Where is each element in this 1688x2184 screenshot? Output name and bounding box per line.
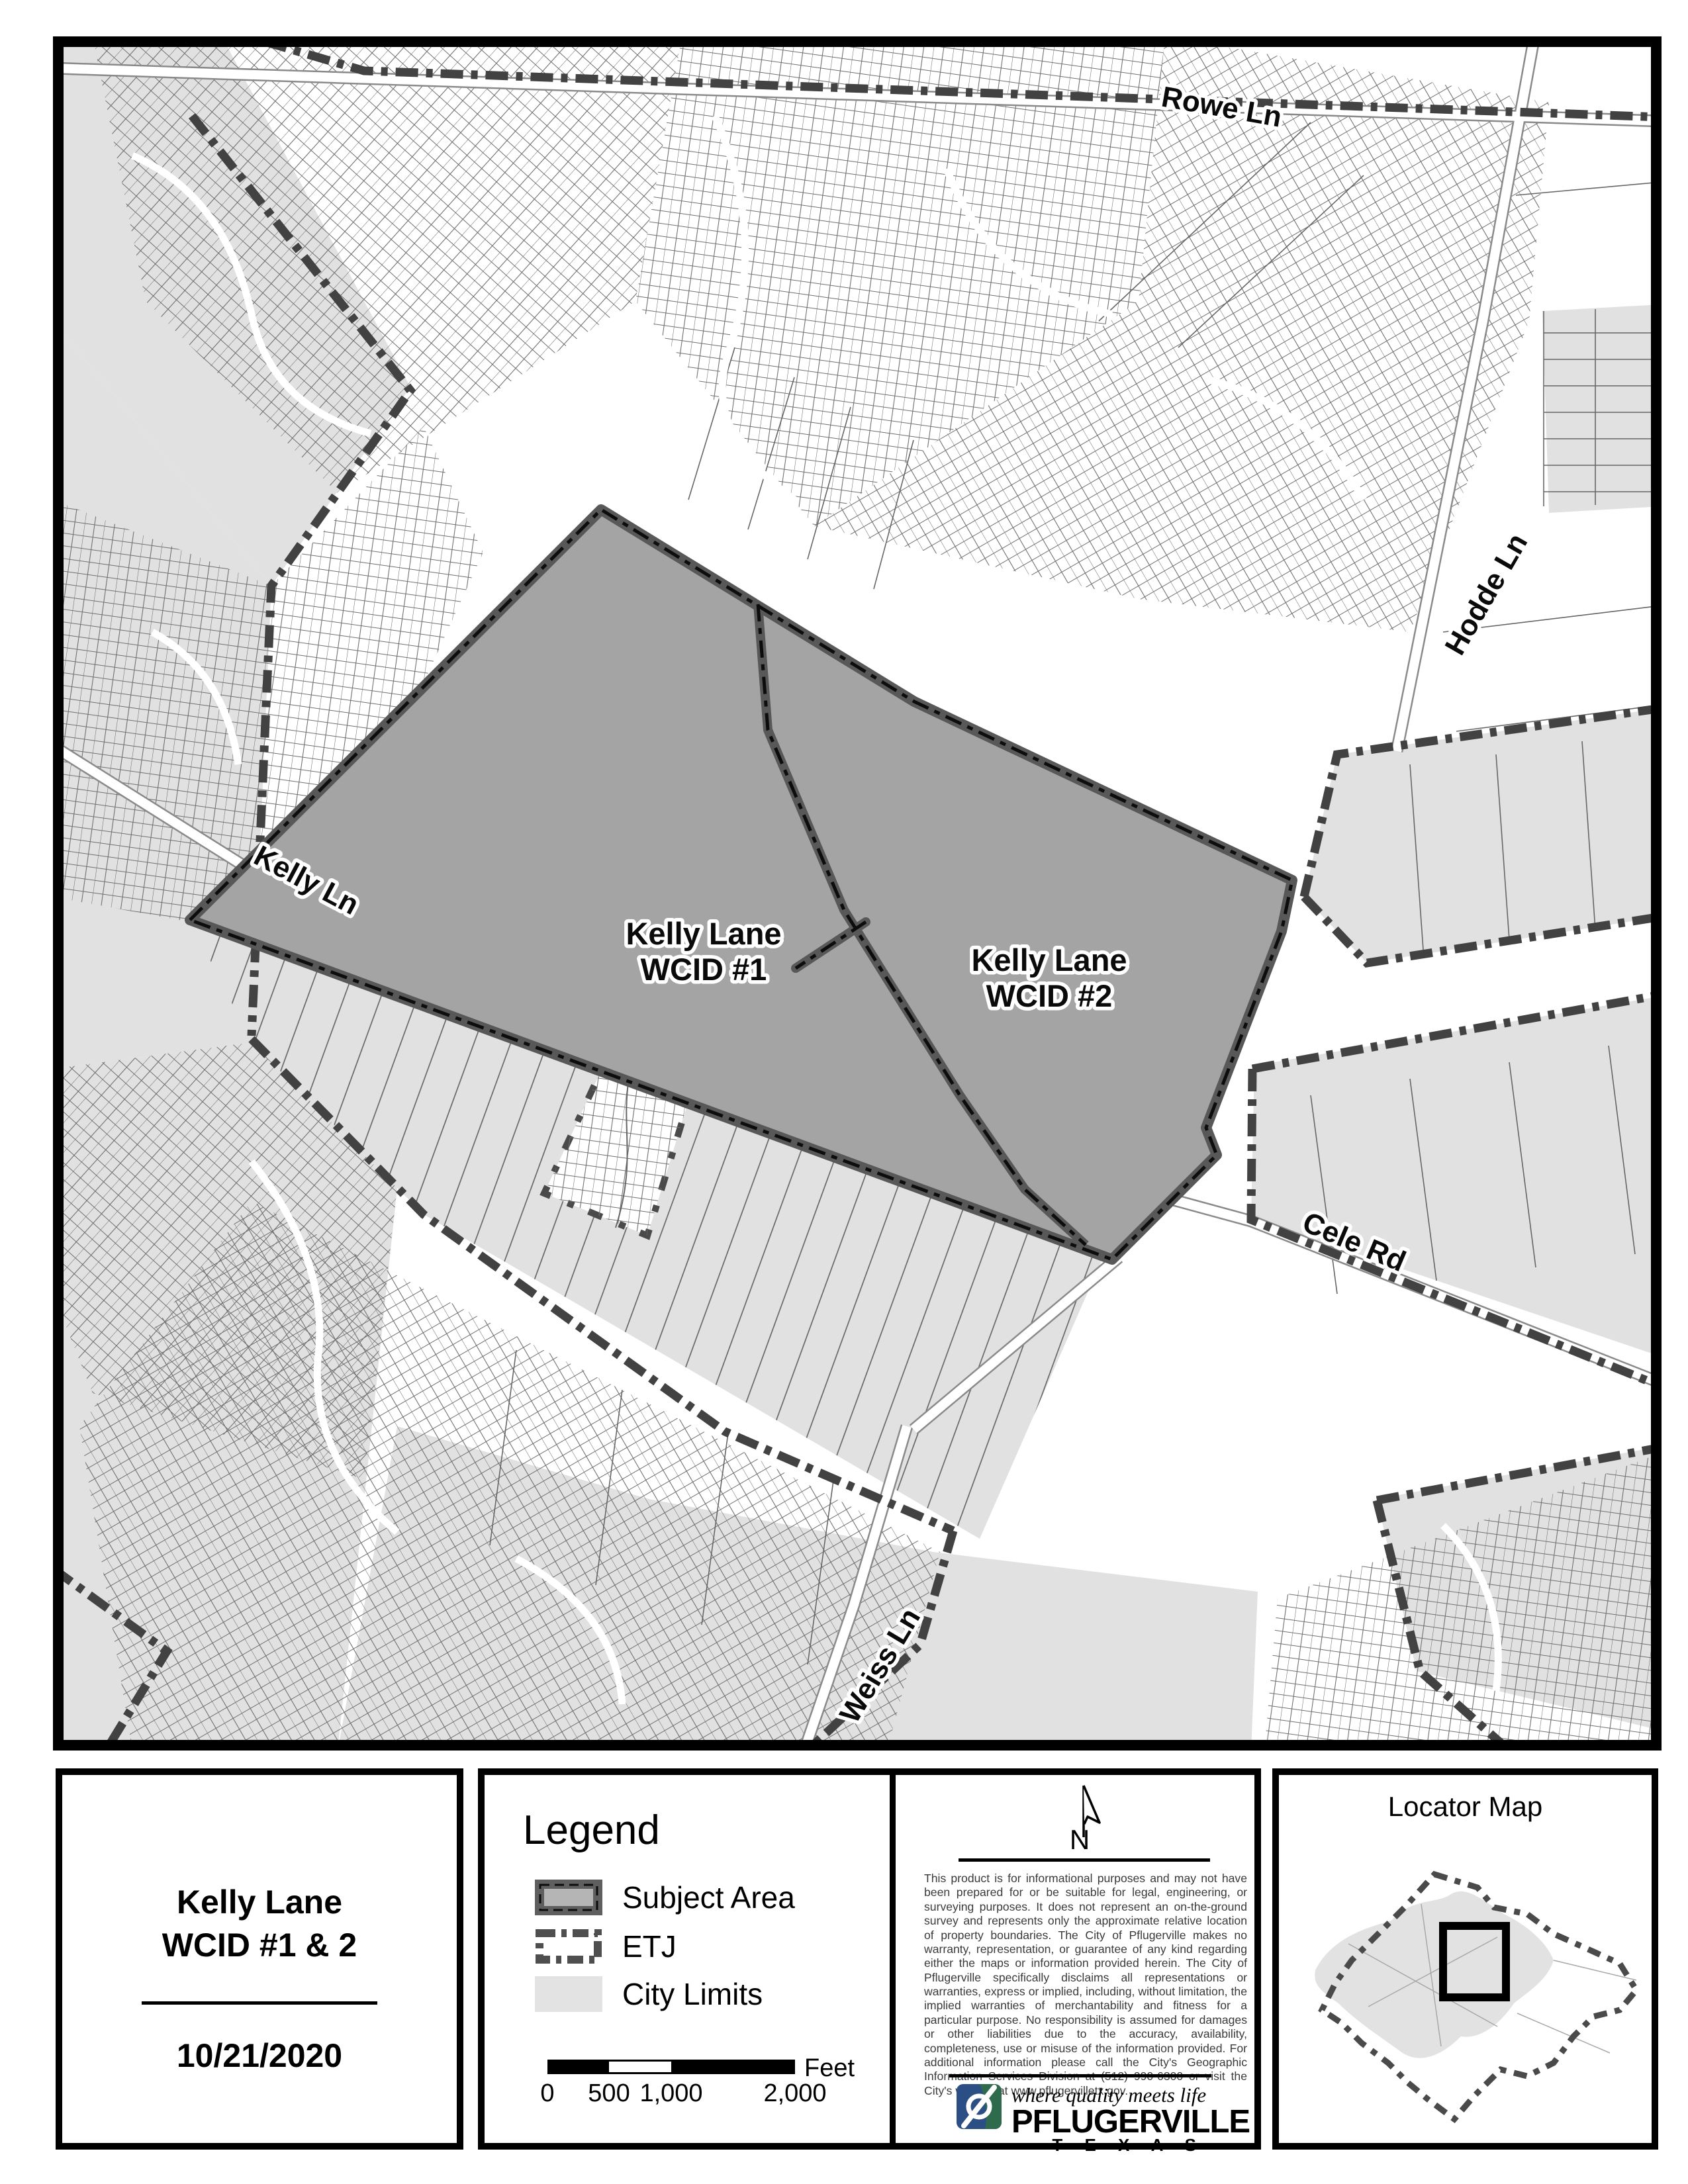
map-document-page: Rowe Ln Hodde Ln Kelly Ln Cele Rd Weiss … [0,0,1688,2184]
disclaimer-rule-top [959,1858,1210,1862]
wcid1-label-line1: Kelly Lane [626,916,781,951]
legend-title: Legend [523,1807,660,1854]
map-title-line1: Kelly Lane [62,1881,457,1924]
north-arrow-flag [1084,1786,1100,1824]
legend-label-city-limits: City Limits [622,1976,763,2012]
scale-tick-500: 500 [588,2079,630,2108]
locator-map-panel: Locator Map [1272,1768,1658,2150]
legend-label-subject-area: Subject Area [622,1880,795,1915]
city-limits-swatch [535,1976,602,2012]
wcid2-label-line1: Kelly Lane [971,942,1127,978]
scale-tick-2000: 2,000 [763,2079,826,2108]
pflugerville-logo: where quality meets life PFLUGERVILLE T … [956,2083,1210,2154]
wcid2-label-line2: WCID #2 [986,978,1113,1013]
legend-item-subject-area: Subject Area [535,1880,795,1915]
scale-bar-ticks: 0 500 1,000 2,000 [547,2074,795,2101]
legend-item-city-limits: City Limits [535,1976,763,2012]
legend-label-etj: ETJ [622,1929,677,1964]
map-date: 10/21/2020 [62,2036,457,2075]
subject-area-swatch [535,1880,602,1915]
locator-map-graphic [1279,1828,1652,2139]
legend-info-panel: Legend Subject Area ETJ City Limits Feet [478,1768,1261,2150]
etj-swatch [535,1929,602,1964]
locator-city-shape [1315,1891,1554,2058]
legend-item-etj: ETJ [535,1929,677,1964]
title-divider [142,2001,377,2005]
scale-bar: Feet 0 500 1,000 2,000 [547,2060,795,2101]
logo-city-name: PFLUGERVILLE [1011,2107,1210,2136]
scale-tick-1000: 1,000 [639,2079,702,2108]
title-block: Kelly Lane WCID #1 & 2 10/21/2020 [56,1768,463,2150]
scale-bar-unit: Feet [804,2054,855,2083]
north-arrow: N [1044,1780,1123,1858]
north-arrow-label: N [1070,1824,1090,1855]
scale-bar-white-segment [609,2062,671,2072]
scale-tick-0: 0 [540,2079,554,2108]
main-map: Rowe Ln Hodde Ln Kelly Ln Cele Rd Weiss … [53,36,1662,1751]
disclaimer-text: This product is for informational purpos… [924,1872,1247,2098]
locator-map-title: Locator Map [1279,1791,1652,1823]
pflugerville-logo-icon [956,2083,1002,2130]
map-title-line2: WCID #1 & 2 [62,1924,457,1967]
wcid1-label-line2: WCID #1 [641,952,767,987]
scale-bar-graphic: Feet [547,2060,795,2074]
panel-divider [890,1775,896,2143]
disclaimer-rule-bottom [949,2074,1211,2077]
